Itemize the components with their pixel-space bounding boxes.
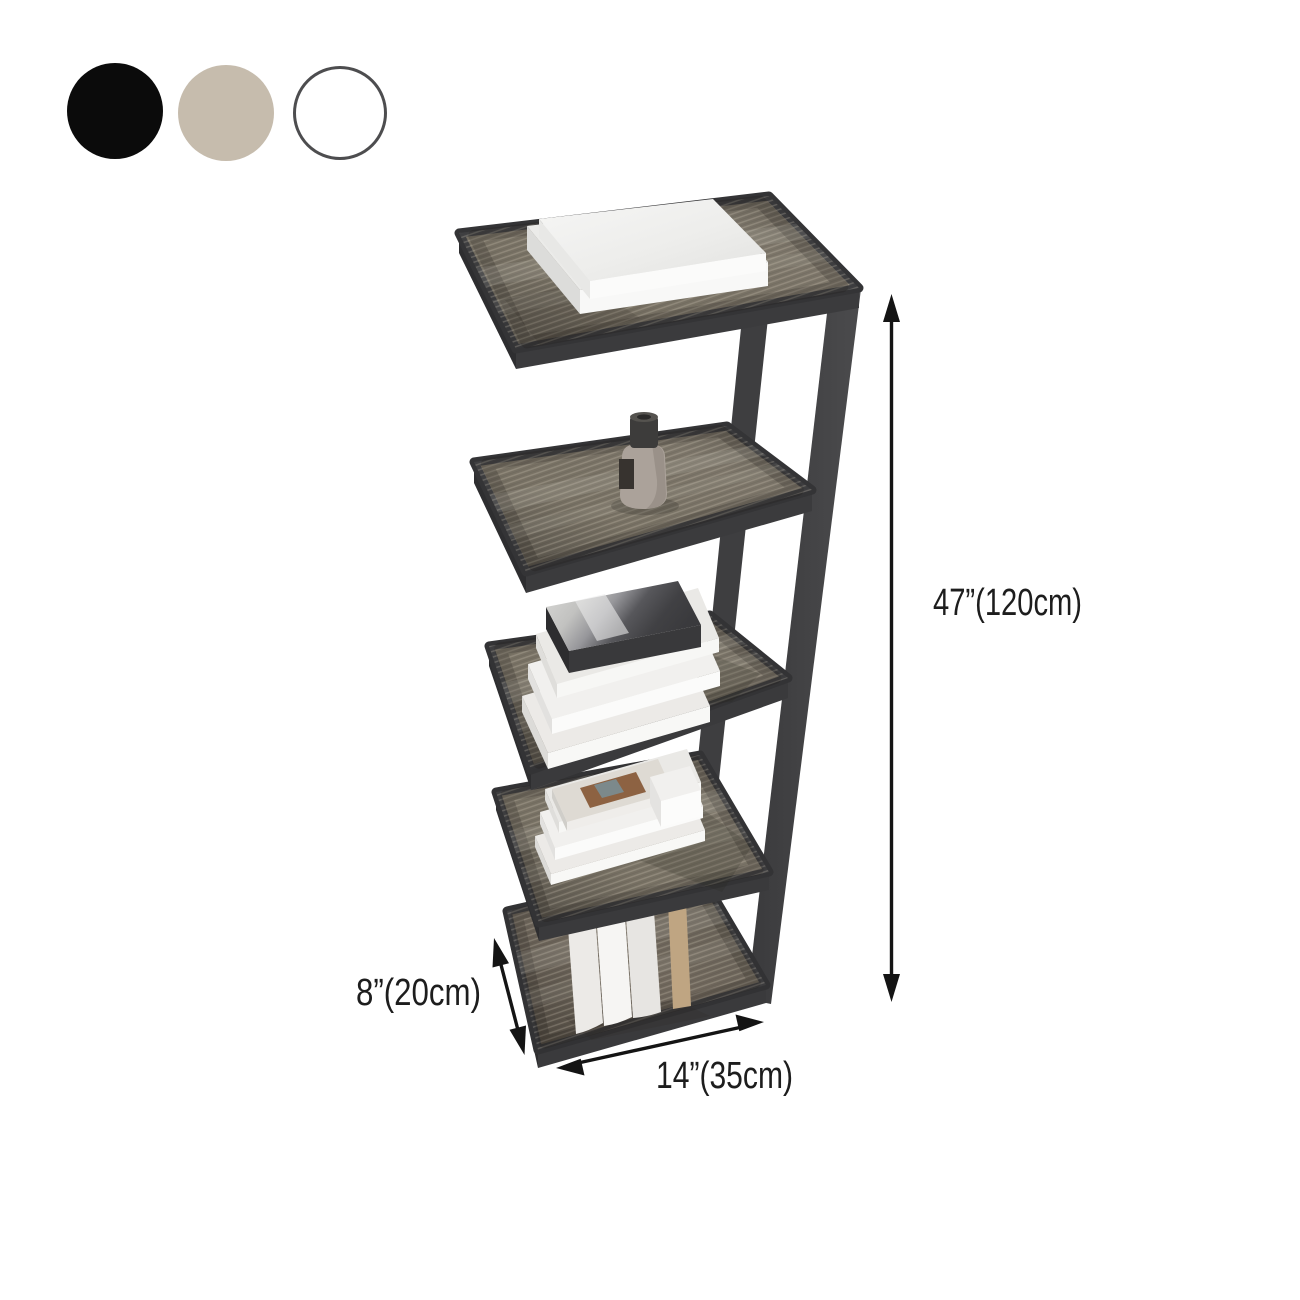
svg-text:8”(20cm): 8”(20cm) — [356, 972, 481, 1014]
svg-text:47”(120cm): 47”(120cm) — [933, 582, 1082, 624]
svg-text:14”(35cm): 14”(35cm) — [656, 1055, 793, 1097]
